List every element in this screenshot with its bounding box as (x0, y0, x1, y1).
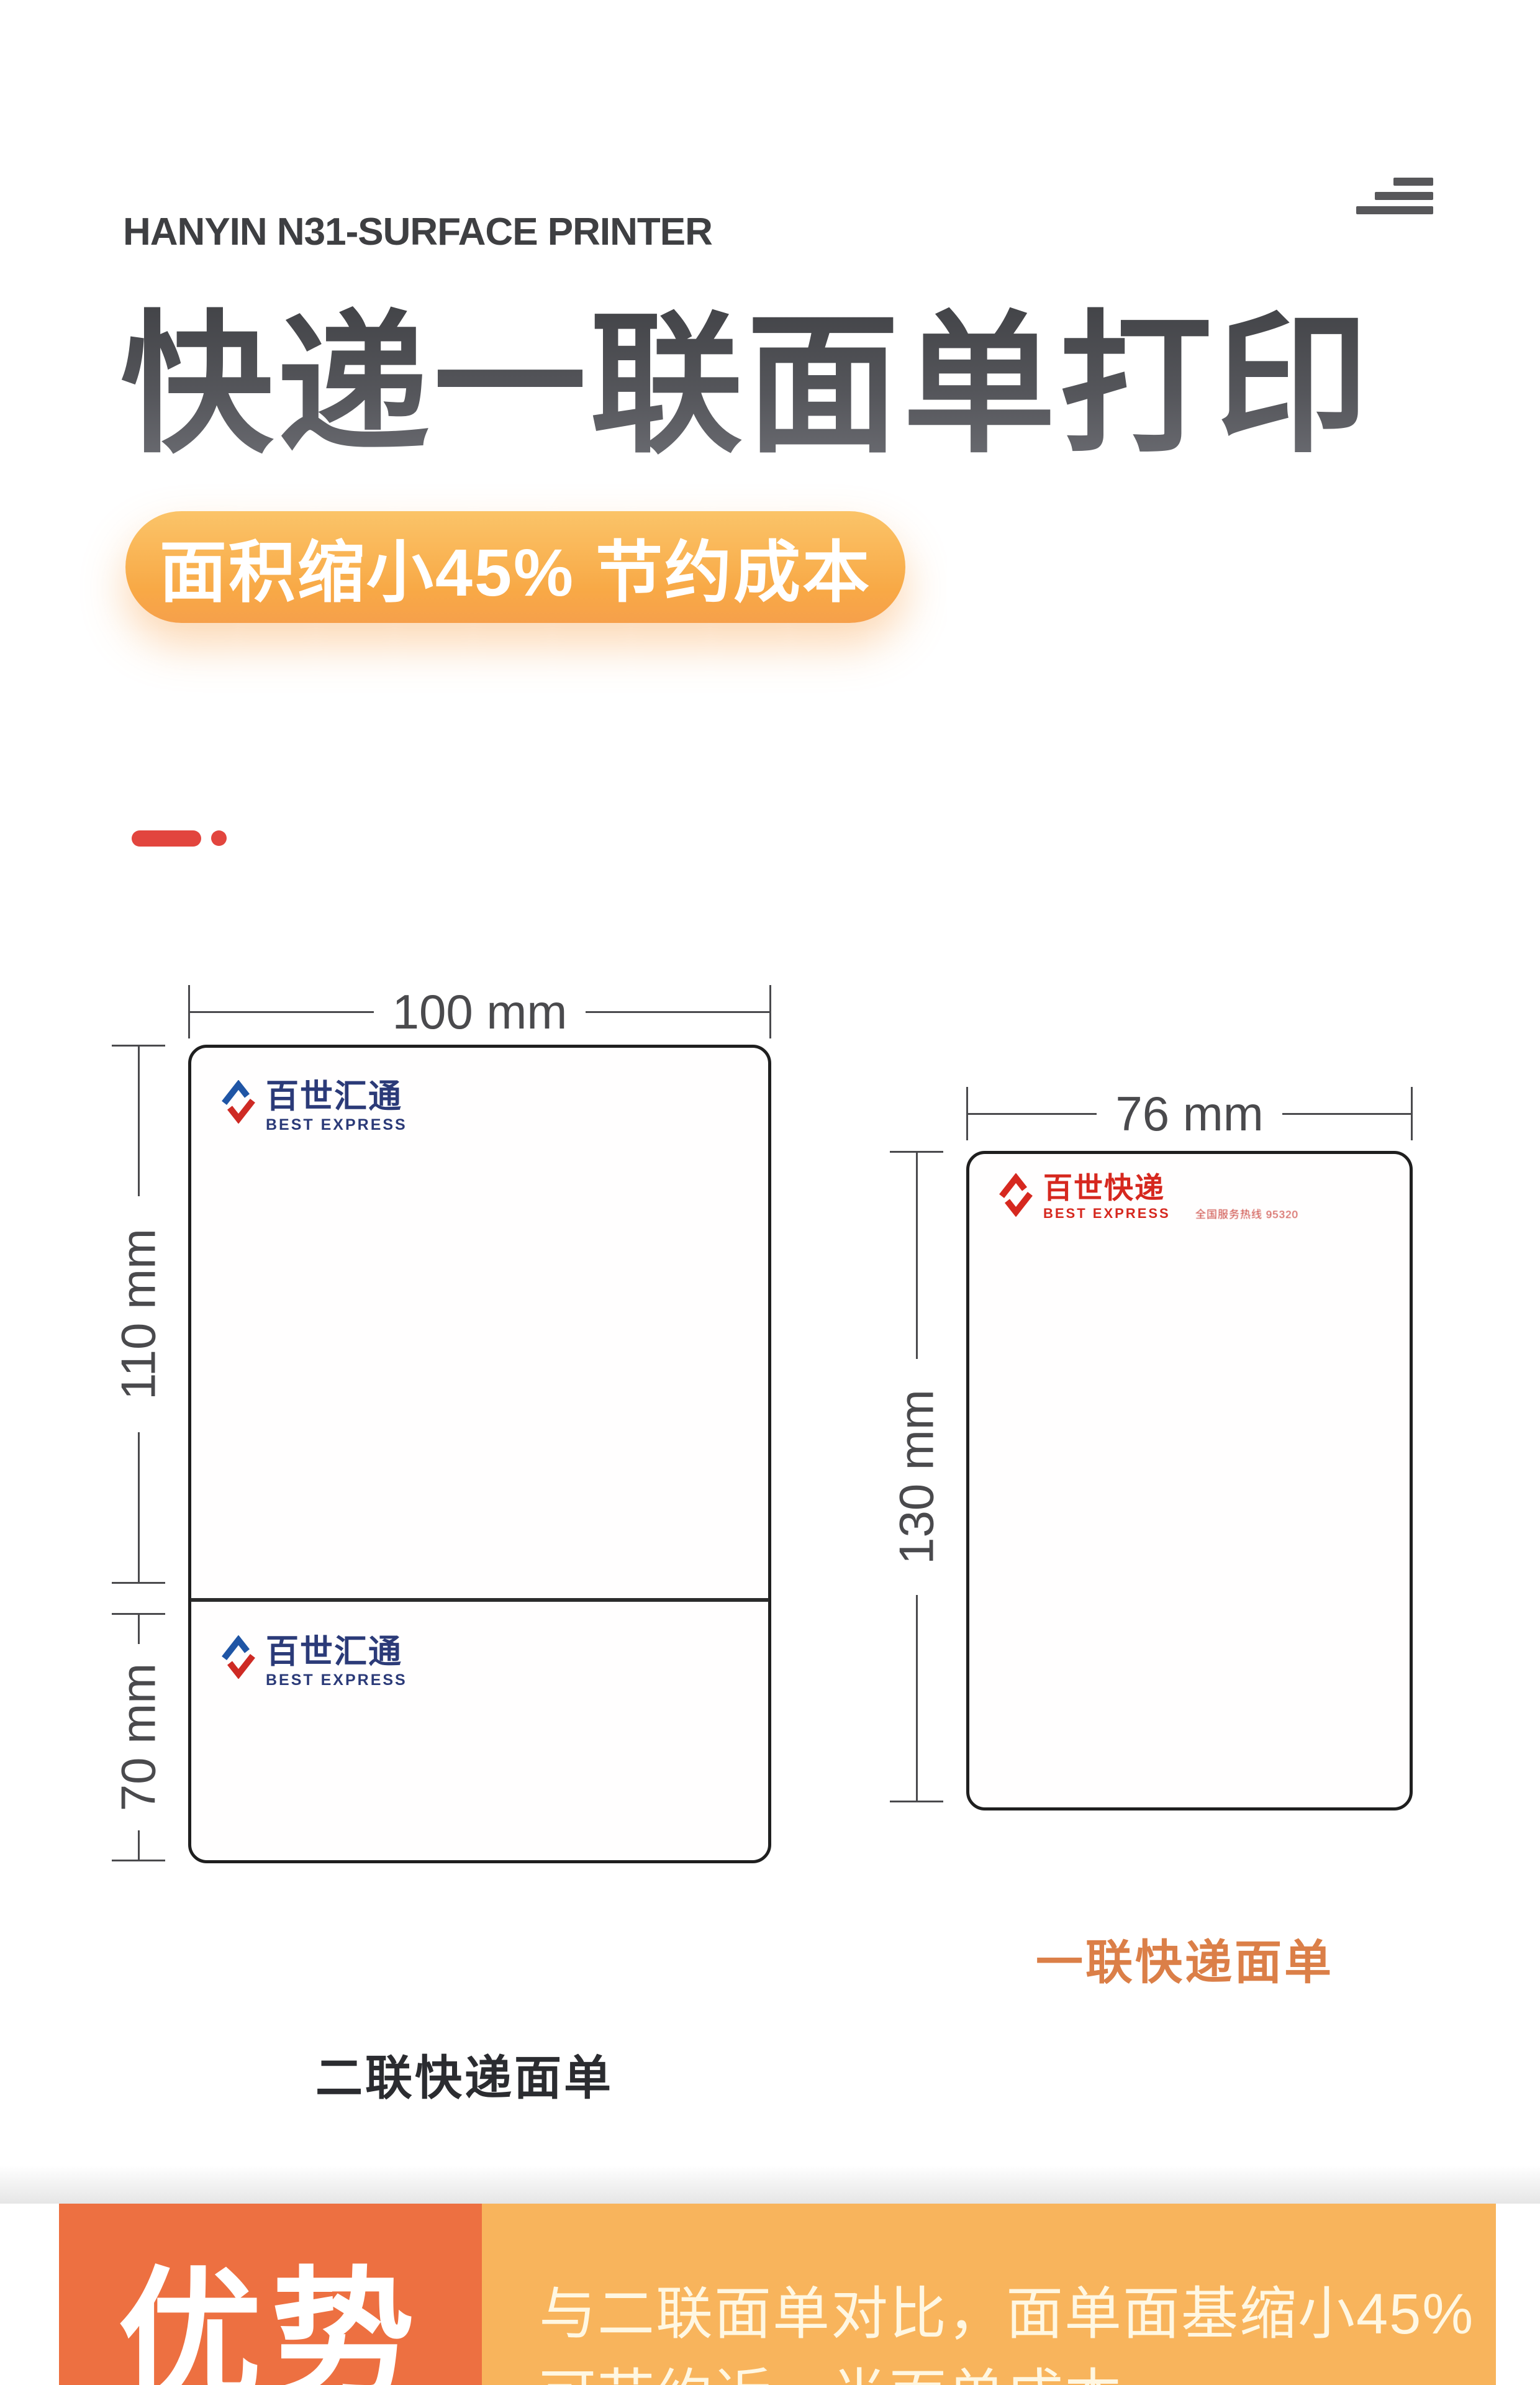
dimension-line (586, 1011, 769, 1013)
two-part-caption: 二联快递面单 (315, 2040, 614, 2108)
discount-badge-label: 面积缩小45% 节约成本 (160, 519, 871, 616)
menu-bar (1356, 206, 1433, 214)
product-title: HANYIN N31-SURFACE PRINTER (123, 210, 712, 254)
logo-cn-text: 百世汇通 (266, 1080, 407, 1113)
dimension-line (968, 1113, 1097, 1115)
menu-bar (1375, 192, 1433, 200)
product-page: HANYIN N31-SURFACE PRINTER 快递一联面单打印 面积缩小… (0, 0, 1540, 2385)
section-shadow (0, 2165, 1540, 2204)
dimension-tick (890, 1801, 943, 1802)
advantage-line-2: 可节约近一半面单成本 (539, 2355, 1496, 2385)
advantage-text-block: 与二联面单对比，面单面基缩小45% 可节约近一半面单成本 (482, 2204, 1496, 2385)
advantage-title-block: 优势 (59, 2204, 482, 2385)
height-dimension-110mm: 110 mm (112, 1045, 165, 1584)
logo-cn-text: 百世汇通 (266, 1635, 407, 1668)
menu-icon[interactable] (1356, 178, 1433, 214)
dimension-line (916, 1595, 918, 1801)
dimension-value: 130 mm (889, 1389, 945, 1565)
waybill-divider-line (191, 1598, 769, 1602)
dimension-line (138, 1830, 140, 1860)
red-dash-decoration (132, 830, 201, 847)
dimension-value: 76 mm (1097, 1086, 1282, 1142)
logo-en-text: BEST EXPRESS (1043, 1206, 1171, 1222)
height-dimension-130mm: 130 mm (890, 1151, 943, 1802)
best-express-logo: 百世汇通 BEST EXPRESS (219, 1635, 407, 1689)
dimension-line (138, 1615, 140, 1644)
discount-badge: 面积缩小45% 节约成本 (125, 511, 905, 623)
one-part-caption: 一联快递面单 (1036, 1924, 1334, 1992)
dimension-tick (112, 1860, 165, 1861)
advantage-title: 优势 (117, 2266, 423, 2385)
dimension-line (1282, 1113, 1411, 1115)
logo-en-text: BEST EXPRESS (266, 1116, 407, 1134)
page-title: 快递一联面单打印 (120, 306, 1372, 466)
logo-en-text: BEST EXPRESS (266, 1671, 407, 1689)
logo-cn-text: 百世快递 (1043, 1173, 1171, 1202)
dimension-line (138, 1432, 140, 1582)
best-express-diamond-icon (996, 1173, 1036, 1217)
dimension-line (916, 1153, 918, 1359)
best-express-diamond-icon (219, 1635, 258, 1679)
dimension-value: 70 mm (111, 1663, 167, 1811)
dimension-value: 110 mm (111, 1229, 167, 1400)
width-dimension-76mm: 76 mm (966, 1087, 1413, 1140)
dimension-tick (769, 985, 771, 1038)
best-express-diamond-icon (219, 1080, 258, 1124)
advantage-line-1: 与二联面单对比，面单面基缩小45% (539, 2273, 1496, 2355)
best-express-logo: 百世快递 BEST EXPRESS (996, 1173, 1171, 1222)
dimension-tick (1411, 1087, 1413, 1140)
dimension-line (138, 1047, 140, 1196)
hotline-text: 全国服务热线 95320 (1195, 1206, 1298, 1221)
height-dimension-70mm: 70 mm (112, 1613, 165, 1861)
two-part-waybill: 百世汇通 BEST EXPRESS 百世汇通 BEST EXPRESS (188, 1045, 771, 1863)
red-dot-decoration (211, 830, 227, 846)
dimension-tick (112, 1582, 165, 1584)
dimension-line (190, 1011, 374, 1013)
dimension-value: 100 mm (374, 984, 586, 1040)
one-part-waybill: 百世快递 BEST EXPRESS 全国服务热线 95320 (966, 1151, 1413, 1810)
width-dimension-100mm: 100 mm (188, 985, 771, 1038)
menu-bar (1393, 178, 1433, 186)
best-express-logo: 百世汇通 BEST EXPRESS (219, 1080, 407, 1134)
